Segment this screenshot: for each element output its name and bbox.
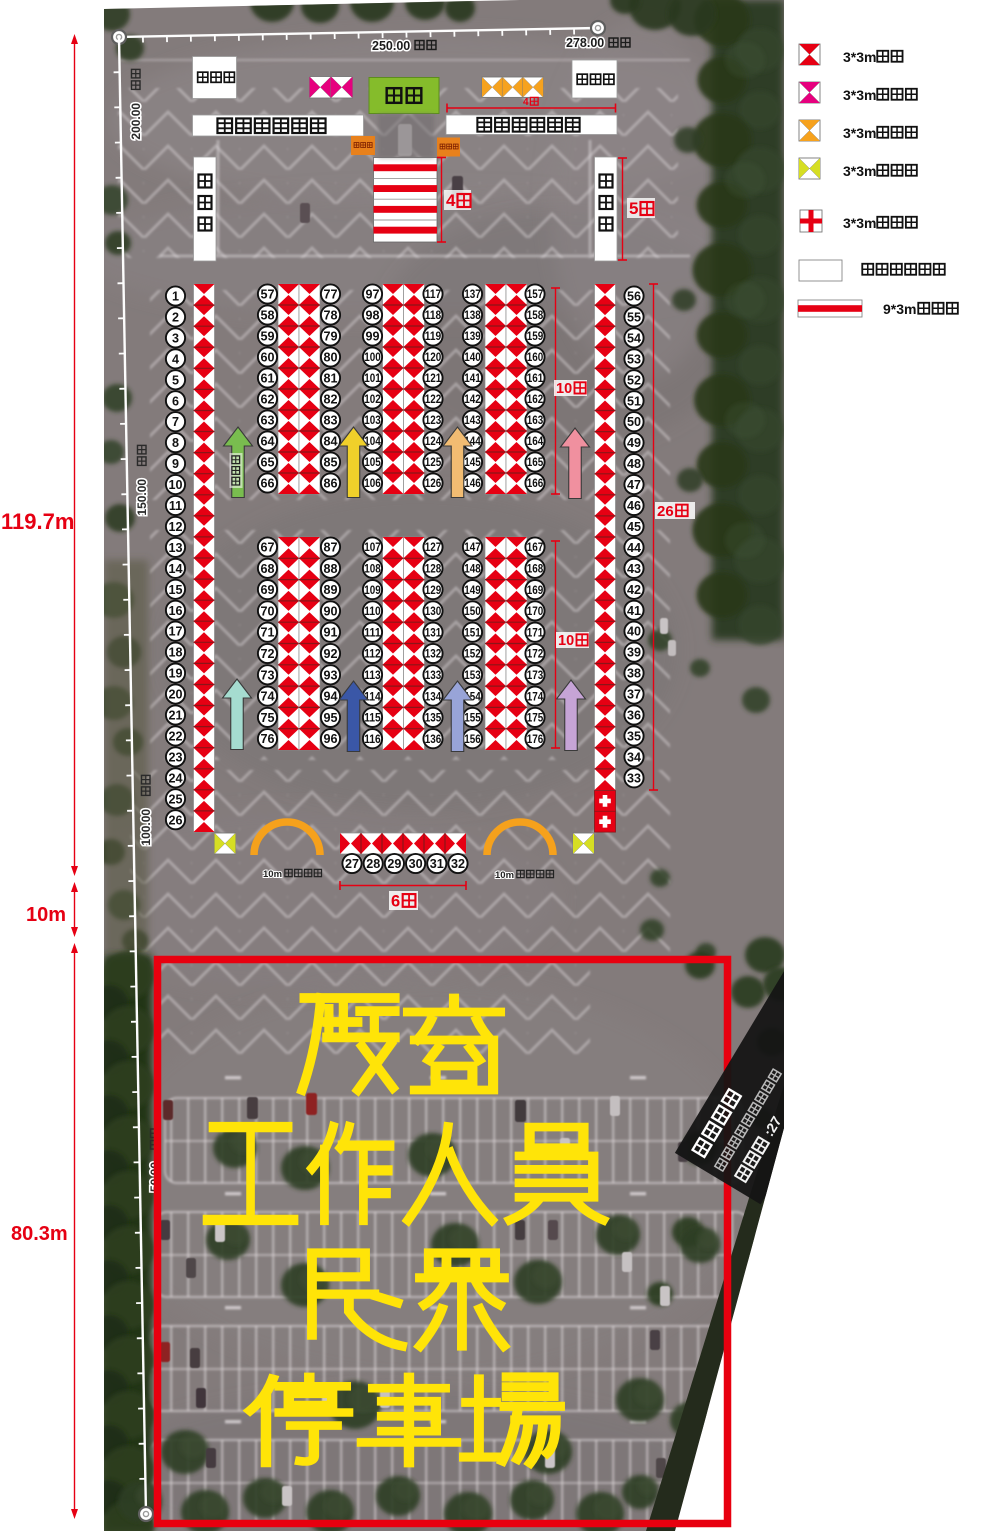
svg-text:12: 12 [168,520,182,534]
svg-text:41: 41 [627,604,641,618]
svg-text:140: 140 [464,351,481,364]
svg-text:26: 26 [168,813,182,827]
svg-text:95: 95 [323,711,337,725]
svg-text:88: 88 [323,562,337,576]
svg-text:52: 52 [627,373,641,387]
svg-text:131: 131 [425,626,442,639]
svg-text:80.3m: 80.3m [11,1223,68,1245]
svg-text:28: 28 [366,857,380,871]
svg-text:8: 8 [172,436,179,450]
svg-text:27: 27 [345,857,359,871]
svg-text:83: 83 [323,414,337,428]
svg-text:23: 23 [168,750,182,764]
svg-text:79: 79 [323,330,337,344]
svg-text:39: 39 [627,646,641,660]
svg-text:169: 169 [527,584,544,597]
svg-text:120: 120 [425,351,442,364]
svg-text:100: 100 [364,351,381,364]
svg-text:130: 130 [425,605,442,618]
svg-text:102: 102 [364,393,381,406]
svg-text:53: 53 [627,352,641,366]
svg-text:125: 125 [425,456,442,469]
svg-text:89: 89 [323,583,337,597]
svg-text:133: 133 [425,669,442,682]
svg-text:14: 14 [168,562,182,576]
svg-text:117: 117 [425,288,442,301]
svg-text:94: 94 [323,690,337,704]
svg-text:115: 115 [364,712,381,725]
svg-text:17: 17 [168,625,182,639]
svg-text:64: 64 [260,435,274,449]
svg-text:114: 114 [364,690,381,703]
svg-text:26: 26 [657,503,674,520]
svg-text:61: 61 [260,372,274,386]
svg-text:112: 112 [364,648,381,661]
svg-text:10m: 10m [26,904,66,926]
svg-text:2: 2 [172,311,179,325]
svg-text:22: 22 [168,730,182,744]
svg-text:172: 172 [527,648,544,661]
svg-text:170: 170 [527,605,544,618]
svg-text:148: 148 [464,563,481,576]
svg-text:156: 156 [464,733,481,746]
svg-text:168: 168 [527,563,544,576]
svg-text:47: 47 [627,478,641,492]
svg-text:76: 76 [260,732,274,746]
svg-text:30: 30 [409,857,423,871]
svg-text:101: 101 [364,372,381,385]
svg-text:48: 48 [627,457,641,471]
svg-text:128: 128 [425,563,442,576]
svg-text:151: 151 [464,626,481,639]
svg-text:142: 142 [464,393,481,406]
svg-text:10: 10 [556,381,572,397]
svg-text:118: 118 [425,309,442,322]
svg-text:122: 122 [425,393,442,406]
svg-text:21: 21 [168,709,182,723]
svg-text:80: 80 [323,351,337,365]
svg-text:5: 5 [172,373,179,387]
svg-text:71: 71 [260,626,274,640]
svg-text:9*3m: 9*3m [883,301,916,317]
svg-text:161: 161 [527,372,544,385]
svg-text:42: 42 [627,583,641,597]
svg-text:34: 34 [627,750,641,764]
svg-text:139: 139 [464,330,481,343]
svg-text:137: 137 [464,288,481,301]
svg-text:157: 157 [527,288,544,301]
svg-text:87: 87 [323,541,337,555]
svg-text:6: 6 [172,394,179,408]
svg-text:105: 105 [364,456,381,469]
svg-text:158: 158 [527,309,544,322]
svg-text:93: 93 [323,668,337,682]
svg-text:135: 135 [425,712,442,725]
svg-text:44: 44 [627,541,641,555]
svg-text:173: 173 [527,669,544,682]
svg-text:3*3m: 3*3m [843,87,876,103]
svg-text:136: 136 [425,733,442,746]
svg-text:7: 7 [172,415,179,429]
svg-text:33: 33 [627,771,641,785]
svg-text:3*3m: 3*3m [843,125,876,141]
svg-text:3: 3 [172,331,179,345]
svg-text:10m: 10m [495,870,514,881]
svg-text:49: 49 [627,436,641,450]
svg-text:31: 31 [430,857,444,871]
svg-text:1: 1 [172,290,179,304]
svg-text:124: 124 [425,435,442,448]
svg-text:38: 38 [627,667,641,681]
svg-text:166: 166 [527,477,544,490]
svg-text:175: 175 [527,712,544,725]
svg-text:174: 174 [527,690,544,703]
svg-text:113: 113 [364,669,381,682]
svg-text:16: 16 [168,604,182,618]
svg-text:149: 149 [464,584,481,597]
svg-text:153: 153 [464,669,481,682]
svg-text:50: 50 [627,415,641,429]
svg-text:10: 10 [558,633,574,649]
svg-text:152: 152 [464,648,481,661]
svg-text:129: 129 [425,584,442,597]
svg-text:3*3m: 3*3m [843,215,876,231]
svg-text:54: 54 [627,331,641,345]
svg-text:123: 123 [425,414,442,427]
svg-text:119: 119 [425,330,442,343]
svg-text:4: 4 [523,97,529,108]
svg-text:70: 70 [260,604,274,618]
svg-text:150.00: 150.00 [135,479,149,516]
svg-text:69: 69 [260,583,274,597]
svg-text:278.00: 278.00 [566,36,604,50]
svg-text:107: 107 [364,541,381,554]
svg-text:164: 164 [527,435,544,448]
svg-text:75: 75 [260,711,274,725]
svg-text:65: 65 [260,456,274,470]
svg-text:60: 60 [260,351,274,365]
svg-text:11: 11 [169,499,182,513]
svg-text:127: 127 [425,541,442,554]
svg-text:250.00: 250.00 [372,39,410,53]
svg-text:90: 90 [323,604,337,618]
svg-text:100.00: 100.00 [139,809,153,846]
svg-text:24: 24 [168,771,182,785]
svg-text:68: 68 [260,562,274,576]
svg-text:58: 58 [260,309,274,323]
svg-text:110: 110 [364,605,381,618]
svg-text:159: 159 [527,330,544,343]
svg-text:98: 98 [365,309,379,323]
svg-text:91: 91 [323,626,337,640]
svg-text:4: 4 [172,352,179,366]
svg-text:63: 63 [260,414,274,428]
svg-text:92: 92 [323,647,337,661]
svg-text:66: 66 [260,477,274,491]
svg-text:165: 165 [527,456,544,469]
svg-text:96: 96 [323,732,337,746]
svg-text:18: 18 [168,646,182,660]
svg-text:4: 4 [446,191,456,210]
svg-text:138: 138 [464,309,481,322]
svg-text:40: 40 [627,625,641,639]
svg-text:141: 141 [464,372,481,385]
svg-text:147: 147 [464,541,481,554]
svg-text:43: 43 [627,562,641,576]
svg-text:160: 160 [527,351,544,364]
svg-text:119.7m: 119.7m [1,509,74,534]
svg-text:134: 134 [425,690,442,703]
svg-text:9: 9 [172,457,179,471]
svg-text:85: 85 [323,456,337,470]
svg-text:13: 13 [168,541,182,555]
svg-text:36: 36 [627,709,641,723]
svg-text:51: 51 [627,394,641,408]
svg-text:5: 5 [629,199,638,218]
svg-text:3*3m: 3*3m [843,163,876,179]
svg-text:200.00: 200.00 [129,103,143,140]
svg-text:25: 25 [168,792,182,806]
svg-text:62: 62 [260,393,274,407]
svg-text:176: 176 [527,733,544,746]
svg-text:74: 74 [260,690,274,704]
svg-text:35: 35 [627,730,641,744]
svg-text:73: 73 [260,668,274,682]
svg-text:32: 32 [451,857,465,871]
svg-text:162: 162 [527,393,544,406]
svg-text:10: 10 [168,478,182,492]
svg-text:99: 99 [365,330,379,344]
svg-text:155: 155 [464,712,481,725]
svg-text:10m: 10m [263,869,282,880]
svg-text:59: 59 [260,330,274,344]
svg-text:20: 20 [168,688,182,702]
svg-text:97: 97 [365,288,379,302]
svg-text:126: 126 [425,477,442,490]
svg-text:82: 82 [323,393,337,407]
svg-text:86: 86 [323,477,337,491]
svg-text:77: 77 [323,288,337,302]
svg-text:78: 78 [323,309,337,323]
svg-text:163: 163 [527,414,544,427]
svg-text:167: 167 [527,541,544,554]
svg-text:132: 132 [425,648,442,661]
svg-text:84: 84 [323,435,337,449]
svg-text:3*3m: 3*3m [843,49,876,65]
svg-text:116: 116 [364,733,381,746]
svg-text:55: 55 [627,311,641,325]
svg-text:103: 103 [364,414,381,427]
svg-text:37: 37 [627,688,641,702]
svg-text:111: 111 [364,626,381,639]
svg-text:109: 109 [364,584,381,597]
svg-text:67: 67 [260,541,274,555]
svg-text:45: 45 [627,520,641,534]
svg-text:46: 46 [627,499,641,513]
svg-text:15: 15 [168,583,182,597]
svg-text:171: 171 [527,626,544,639]
svg-text:121: 121 [425,372,442,385]
svg-text:145: 145 [464,456,481,469]
svg-text:6: 6 [391,892,400,910]
svg-text:57: 57 [260,288,274,302]
svg-text:29: 29 [387,857,401,871]
svg-text:106: 106 [364,477,381,490]
svg-text:19: 19 [168,667,182,681]
svg-text:108: 108 [364,563,381,576]
svg-text:72: 72 [260,647,274,661]
svg-text:143: 143 [464,414,481,427]
svg-text:150: 150 [464,605,481,618]
svg-text:81: 81 [323,372,337,386]
svg-text:146: 146 [464,477,481,490]
svg-text:56: 56 [627,290,641,304]
